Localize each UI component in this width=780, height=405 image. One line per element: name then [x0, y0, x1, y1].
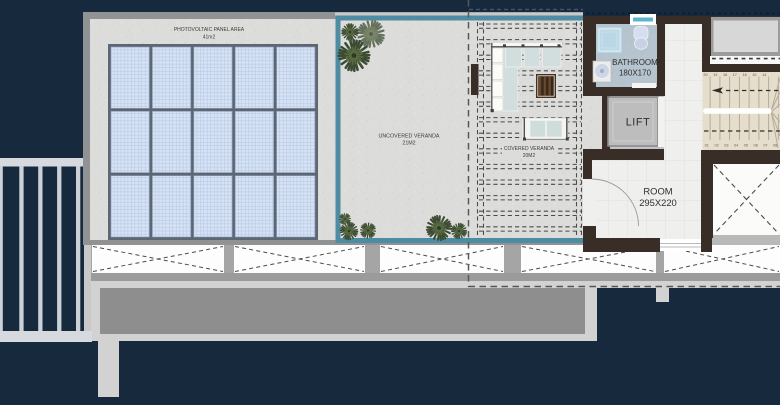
svg-text:03: 03: [724, 143, 728, 147]
svg-text:20: 20: [703, 73, 707, 77]
svg-text:18: 18: [723, 73, 727, 77]
svg-text:01: 01: [705, 143, 709, 147]
svg-text:UNCOVERED VERANDA: UNCOVERED VERANDA: [379, 134, 440, 140]
svg-text:08: 08: [773, 143, 777, 147]
svg-text:PHOTOVOLTAIC PANEL AREA: PHOTOVOLTAIC PANEL AREA: [174, 27, 245, 33]
svg-text:07: 07: [763, 143, 767, 147]
svg-text:295X220: 295X220: [639, 197, 677, 208]
svg-text:LIFT: LIFT: [626, 117, 651, 129]
svg-text:COVERED VERANDA: COVERED VERANDA: [504, 146, 555, 152]
svg-text:05: 05: [744, 143, 748, 147]
svg-text:BATHROOM: BATHROOM: [612, 58, 658, 67]
svg-text:16: 16: [742, 73, 746, 77]
svg-text:21M2: 21M2: [402, 141, 415, 147]
svg-text:06: 06: [754, 143, 758, 147]
svg-text:ROOM: ROOM: [643, 186, 672, 197]
svg-text:17: 17: [733, 73, 737, 77]
svg-text:41m2: 41m2: [203, 35, 216, 41]
svg-text:14: 14: [762, 73, 766, 77]
svg-text:15: 15: [752, 73, 756, 77]
svg-text:02: 02: [714, 143, 718, 147]
svg-text:180X170: 180X170: [619, 69, 652, 78]
svg-text:19: 19: [713, 73, 717, 77]
svg-text:20M2: 20M2: [523, 153, 536, 159]
svg-text:04: 04: [734, 143, 738, 147]
